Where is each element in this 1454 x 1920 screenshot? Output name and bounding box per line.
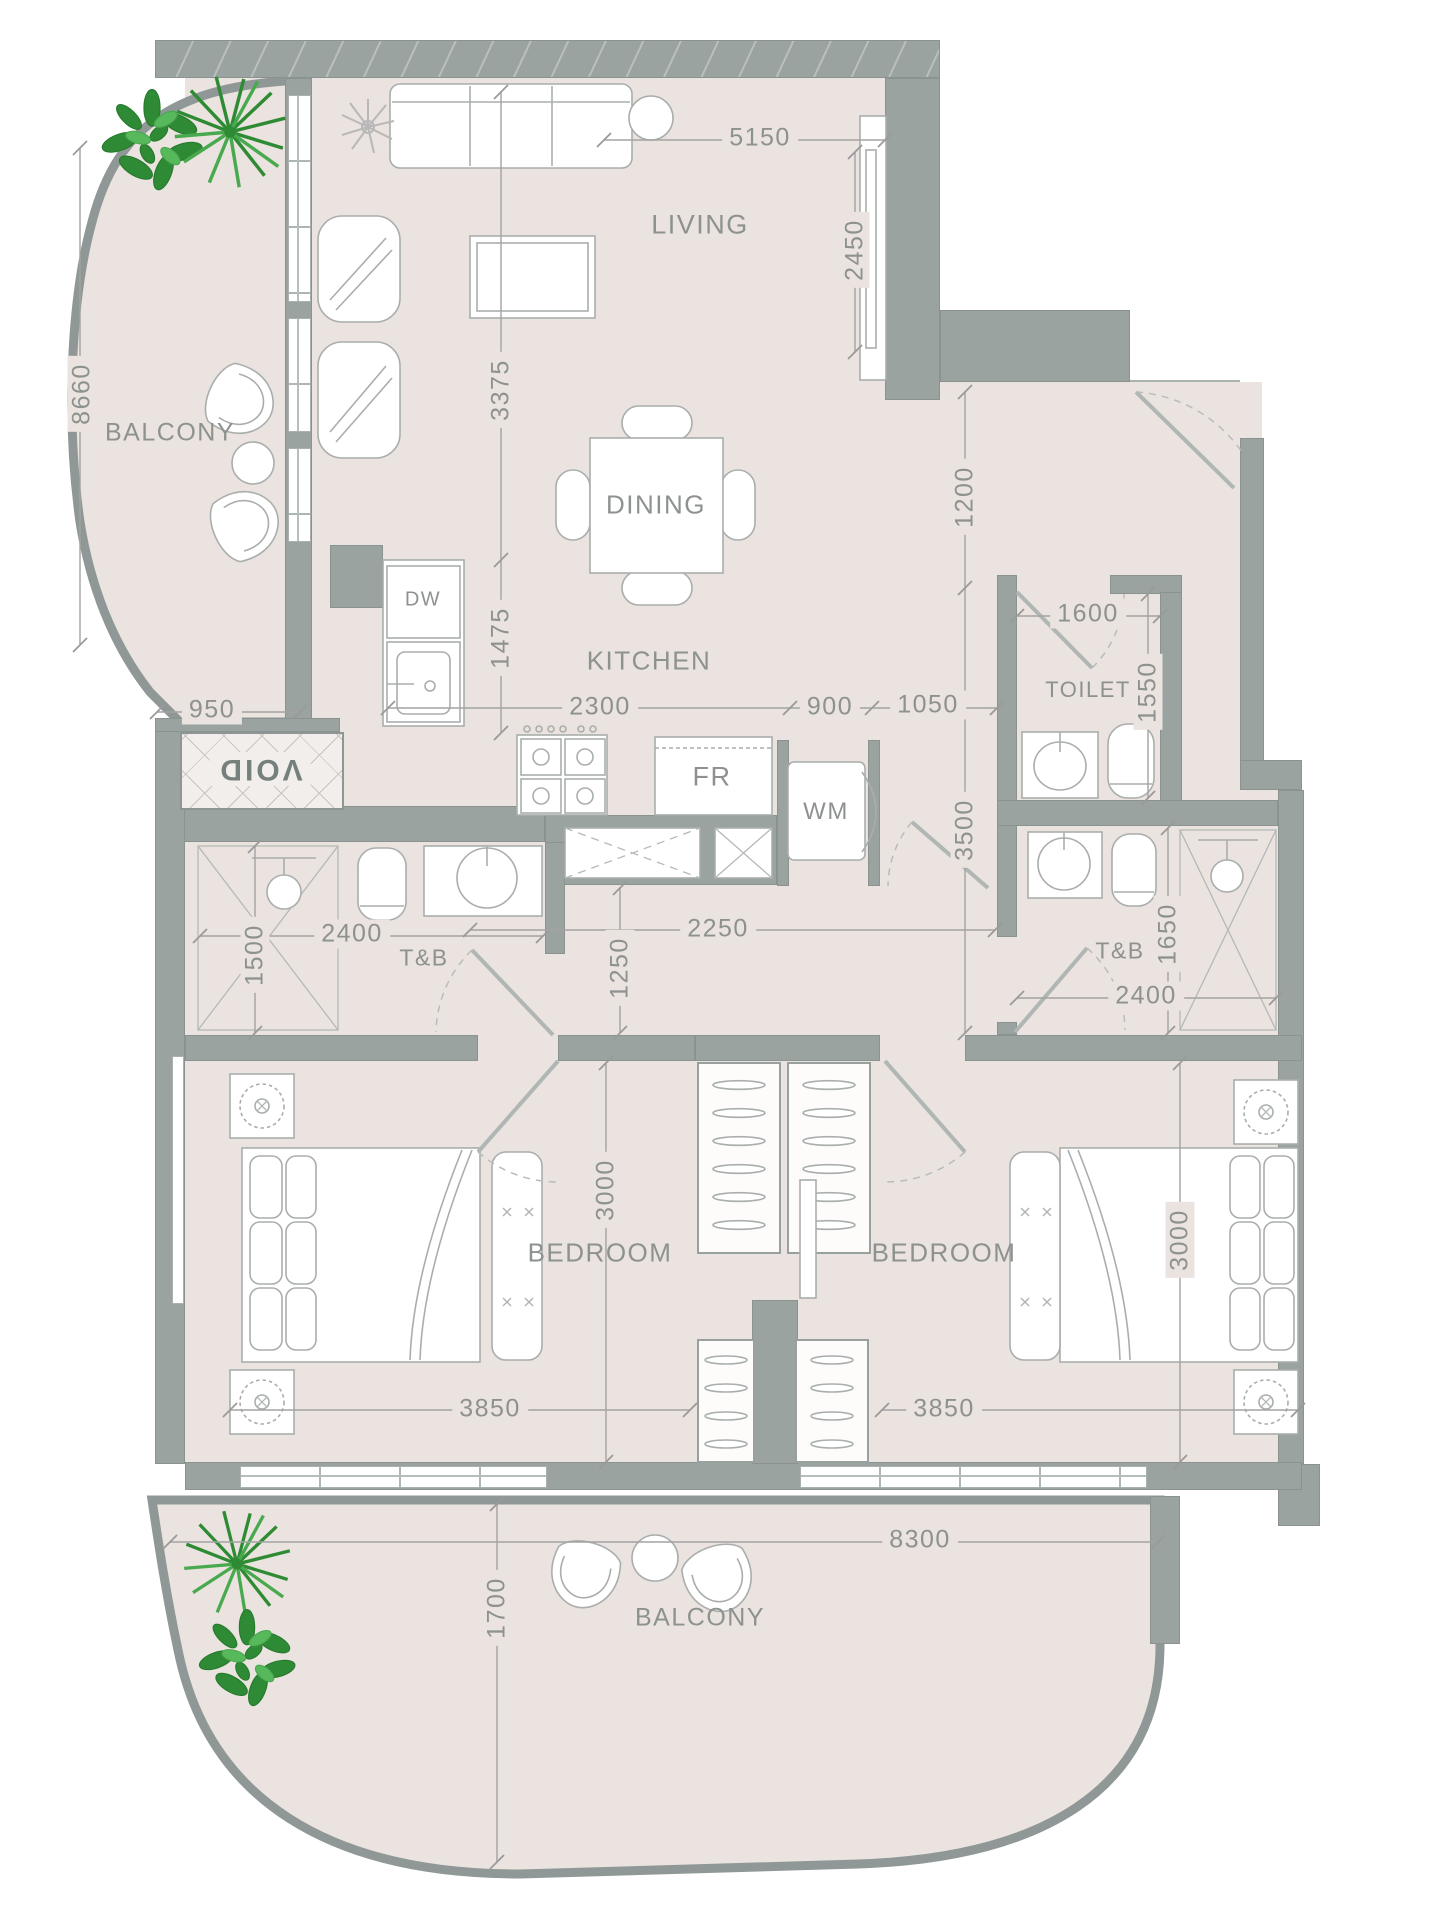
sofa: [390, 84, 632, 168]
appliance-label-fr: FR: [693, 762, 732, 793]
room-label-kitchen: KITCHEN: [587, 646, 712, 677]
dim-2400-left: 2400: [314, 920, 390, 949]
dim-5150: 5150: [722, 124, 798, 153]
dim-3850-right: 3850: [906, 1395, 982, 1424]
stove: [517, 726, 607, 815]
room-label-bedroom-left: BEDROOM: [528, 1238, 673, 1269]
dim-3000-left: 3000: [592, 1152, 621, 1228]
dim-950: 950: [182, 696, 242, 725]
dim-8660: 8660: [68, 356, 97, 432]
room-label-balcony-bottom: BALCONY: [635, 1604, 765, 1633]
dim-1650: 1650: [1154, 896, 1183, 972]
ac-unit-icon: [230, 1370, 294, 1434]
room-label-bedroom-right: BEDROOM: [872, 1238, 1017, 1269]
room-label-tb-left: T&B: [399, 945, 448, 972]
dim-1050: 1050: [890, 691, 966, 720]
room-label-toilet: TOILET: [1045, 677, 1131, 703]
floor-plan: BALCONY LIVING DINING KITCHEN TOILET T&B…: [0, 0, 1454, 1920]
wardrobes: [698, 1063, 870, 1462]
dim-900: 900: [800, 693, 860, 722]
side-table: [629, 96, 673, 140]
ac-unit-icon: [230, 1074, 294, 1138]
toilet-room-fixtures: [1022, 724, 1154, 798]
balcony-top-furniture: [197, 357, 290, 568]
plant-bush-icon: [100, 89, 204, 192]
coffee-table: [470, 236, 595, 318]
dim-3500: 3500: [951, 792, 980, 868]
indoor-plant-icon: [342, 99, 394, 153]
dim-1200: 1200: [951, 459, 980, 535]
dim-1700: 1700: [483, 1570, 512, 1646]
dim-1550: 1550: [1134, 654, 1163, 730]
dim-2250: 2250: [680, 915, 756, 944]
bench-right: [1010, 1152, 1060, 1360]
dim-1600: 1600: [1050, 600, 1126, 629]
room-label-void: VOID: [209, 752, 310, 786]
ac-unit-icon: [1234, 1370, 1298, 1434]
appliance-label-wm: WM: [803, 798, 849, 826]
dim-1500: 1500: [241, 917, 270, 993]
dim-2450: 2450: [841, 212, 870, 288]
dim-3375: 3375: [487, 352, 516, 428]
appliance-label-dw: DW: [405, 589, 441, 612]
dim-2400-right: 2400: [1108, 982, 1184, 1011]
room-label-dining: DINING: [606, 490, 706, 521]
dim-2300: 2300: [562, 693, 638, 722]
armchair-1: [318, 216, 400, 322]
room-label-living: LIVING: [651, 210, 749, 241]
armchair-2: [318, 342, 400, 458]
dim-3850-left: 3850: [452, 1395, 528, 1424]
dim-1250: 1250: [606, 930, 635, 1006]
room-label-balcony-top: BALCONY: [105, 419, 235, 448]
ac-unit-icon: [1234, 1080, 1298, 1144]
dim-1475: 1475: [487, 600, 516, 676]
kitchen-counter: [383, 560, 464, 726]
room-label-tb-right: T&B: [1095, 938, 1144, 965]
plant-bush-icon: [197, 1610, 297, 1708]
dim-8300: 8300: [882, 1526, 958, 1555]
shower-right: [1180, 830, 1276, 1030]
dim-3000-right: 3000: [1166, 1202, 1195, 1278]
bed-left: [242, 1148, 480, 1362]
plant-palm-icon: [184, 1511, 290, 1617]
duct-boxes: [565, 828, 772, 878]
